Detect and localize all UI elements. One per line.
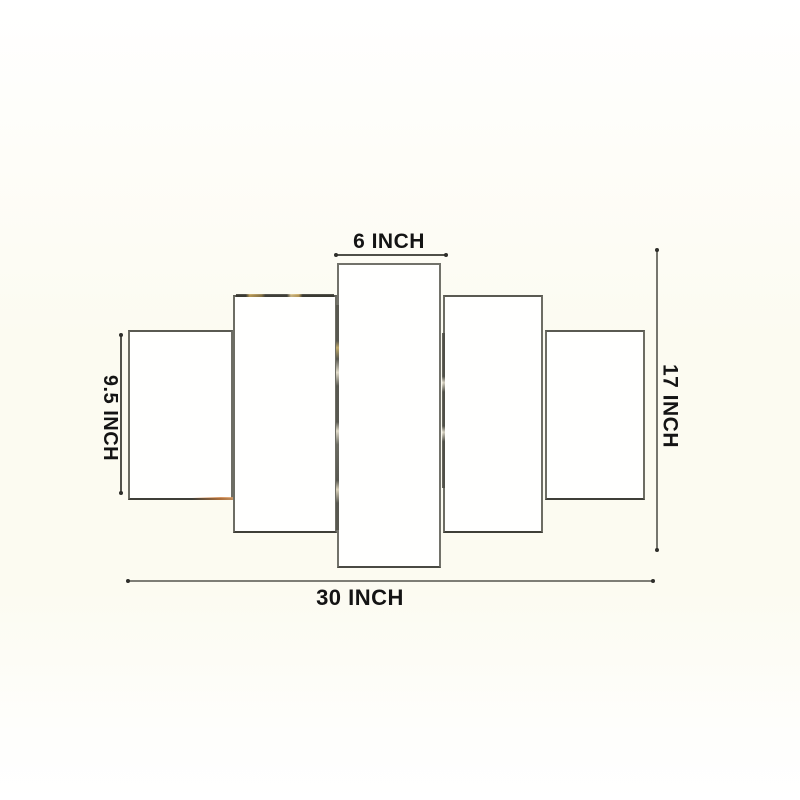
panel-outer-right <box>545 330 645 500</box>
dimension-label-center-width: 6 INCH <box>320 231 458 252</box>
dimension-label-total-height: 17 INCH <box>660 364 681 448</box>
dimension-label-outer-height: 9.5 INCH <box>100 375 120 461</box>
dimension-label-total-width: 30 INCH <box>294 587 426 609</box>
panel-mid-right <box>443 295 543 533</box>
panel-mid-left <box>233 295 337 533</box>
panel-center <box>337 263 441 568</box>
size-diagram: 6 INCH 9.5 INCH 17 INCH 30 INCH <box>0 0 800 800</box>
dimension-line-center-width <box>336 254 446 256</box>
panel-outer-left <box>128 330 233 500</box>
dimension-line-total-width <box>128 580 653 582</box>
